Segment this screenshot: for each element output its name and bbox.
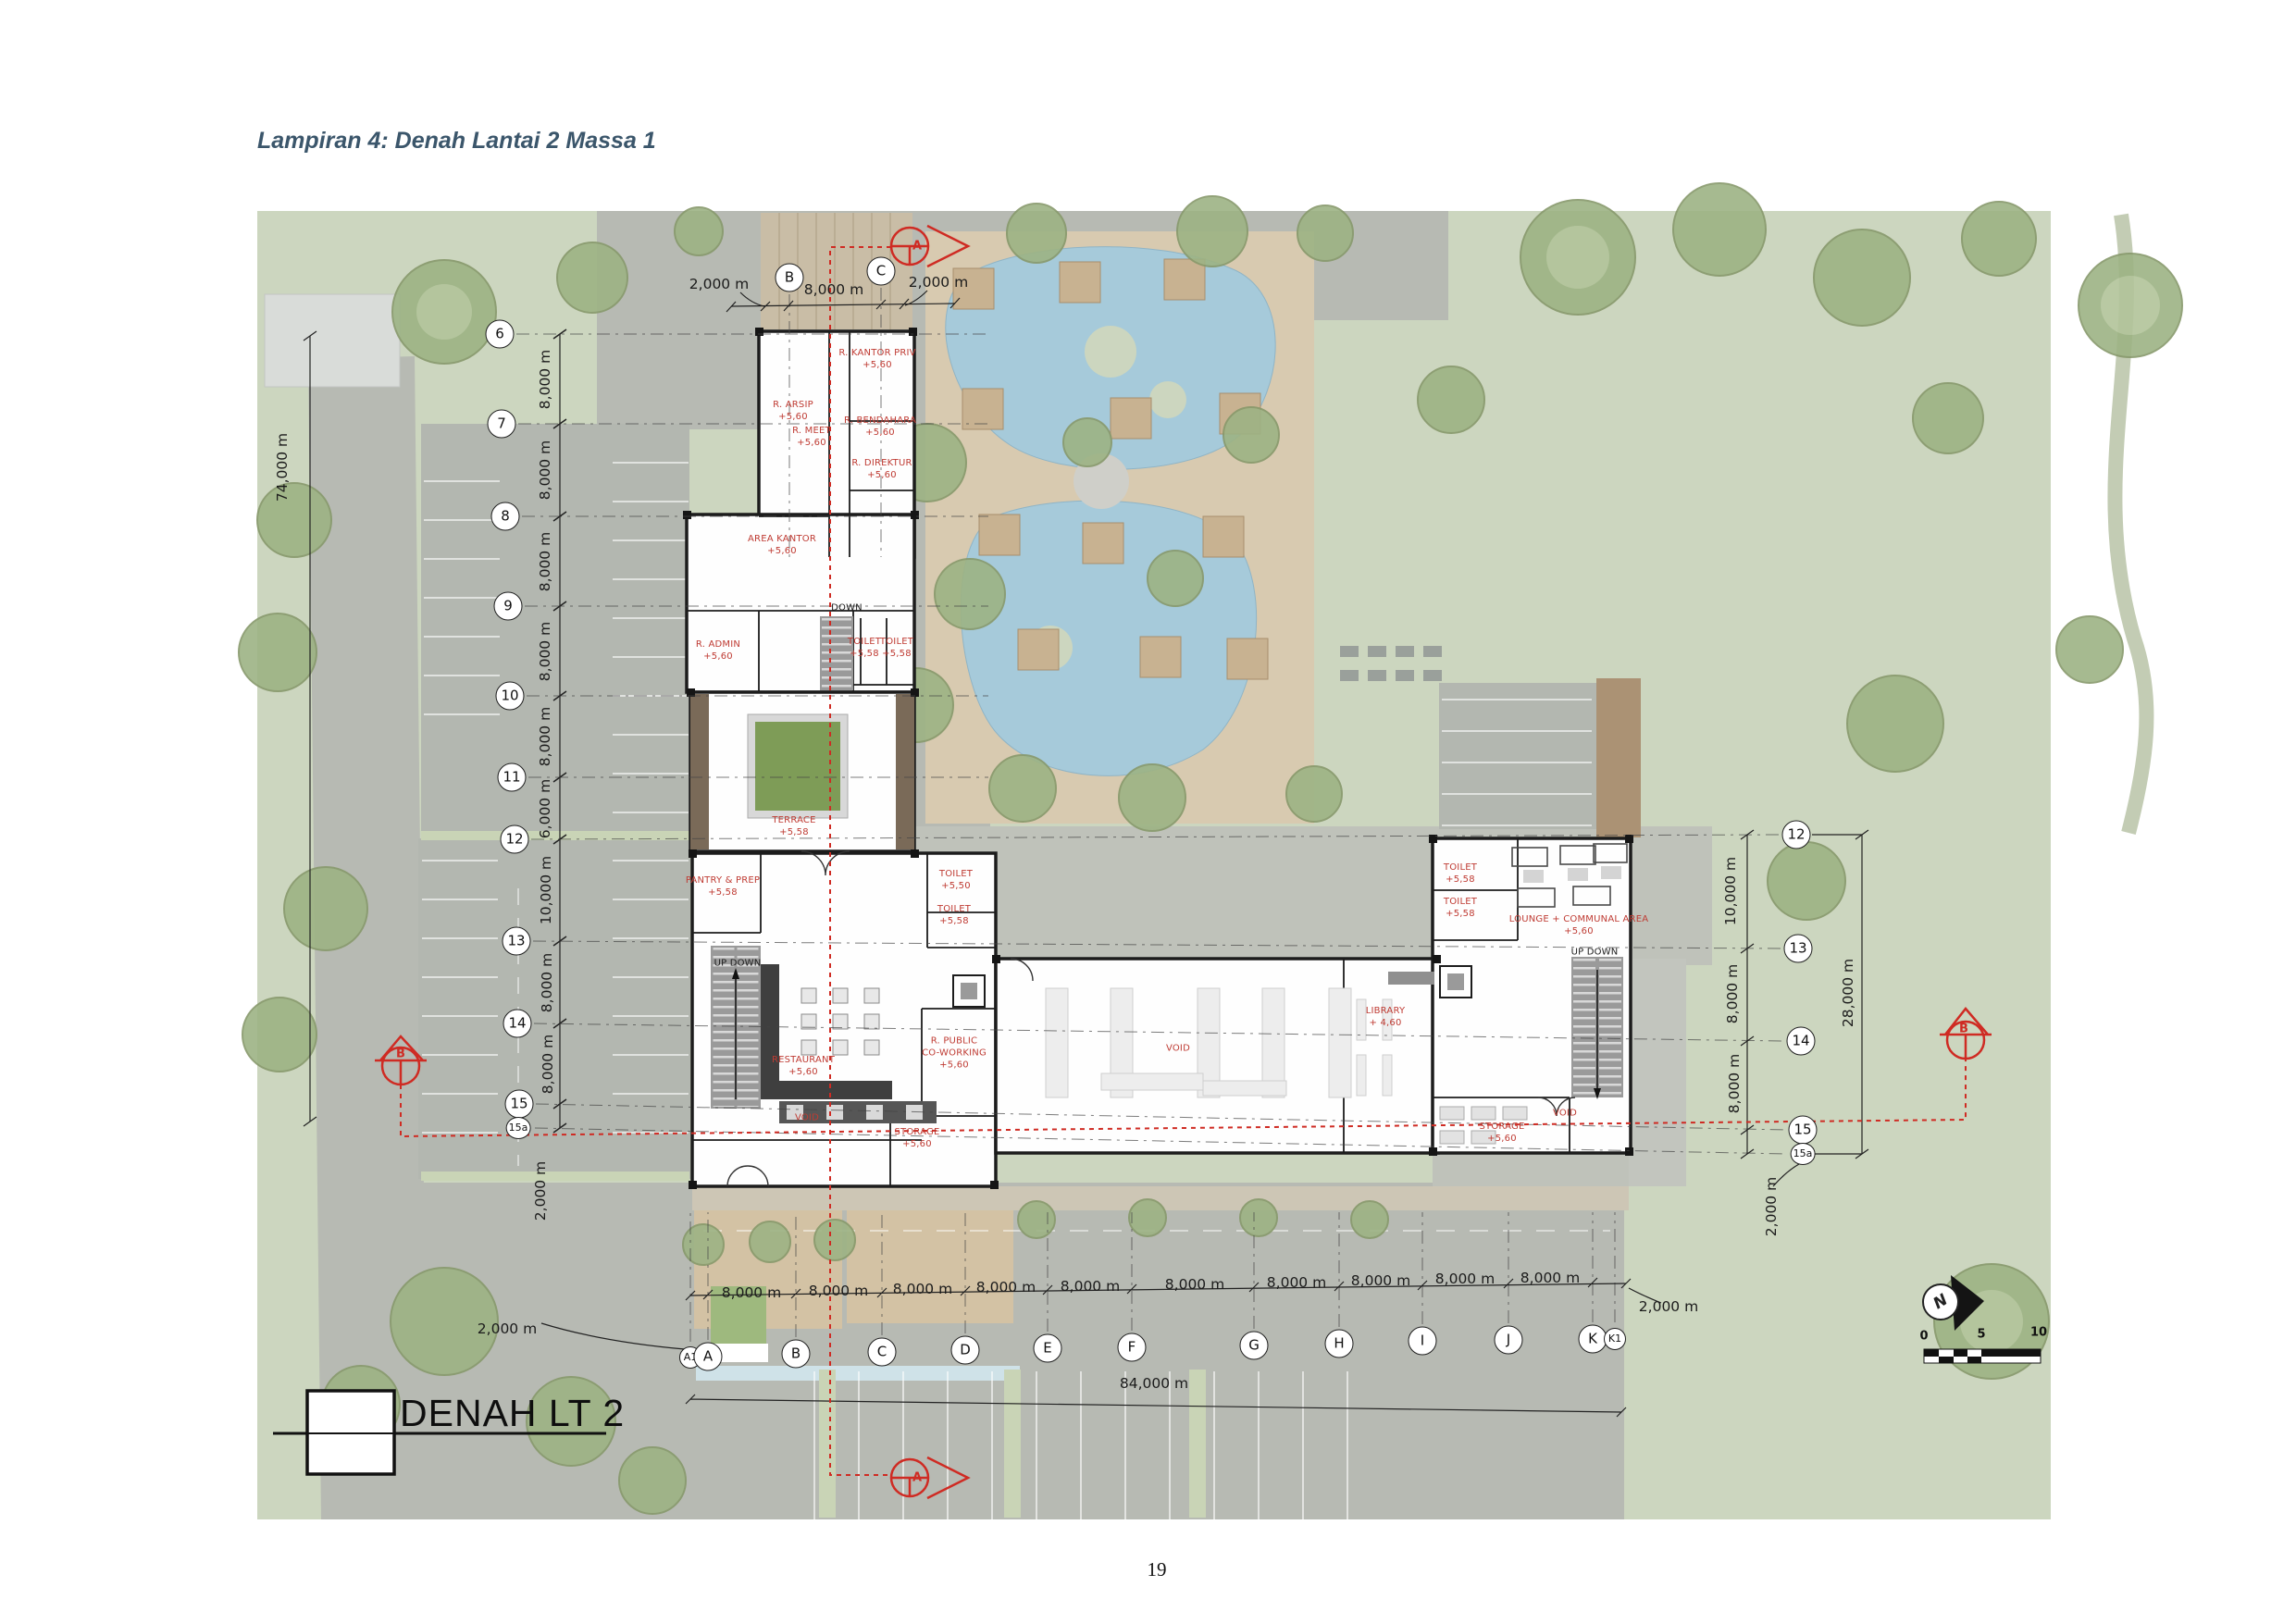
- page-number: 19: [1120, 1558, 1194, 1581]
- scale-tick-5: 5: [1977, 1328, 1985, 1342]
- scale-bar: [1924, 1349, 2041, 1363]
- scale-tick-10: 10: [2030, 1326, 2047, 1340]
- site-plan-drawing: [0, 0, 2296, 1624]
- appendix-header: Lampiran 4: Denah Lantai 2 Massa 1: [257, 128, 656, 155]
- document-page: Lampiran 4: Denah Lantai 2 Massa 1 DENAH…: [0, 0, 2296, 1624]
- plan-title: DENAH LT 2: [400, 1392, 625, 1435]
- scale-tick-0: 0: [1919, 1330, 1928, 1344]
- lower-roof: [761, 213, 912, 329]
